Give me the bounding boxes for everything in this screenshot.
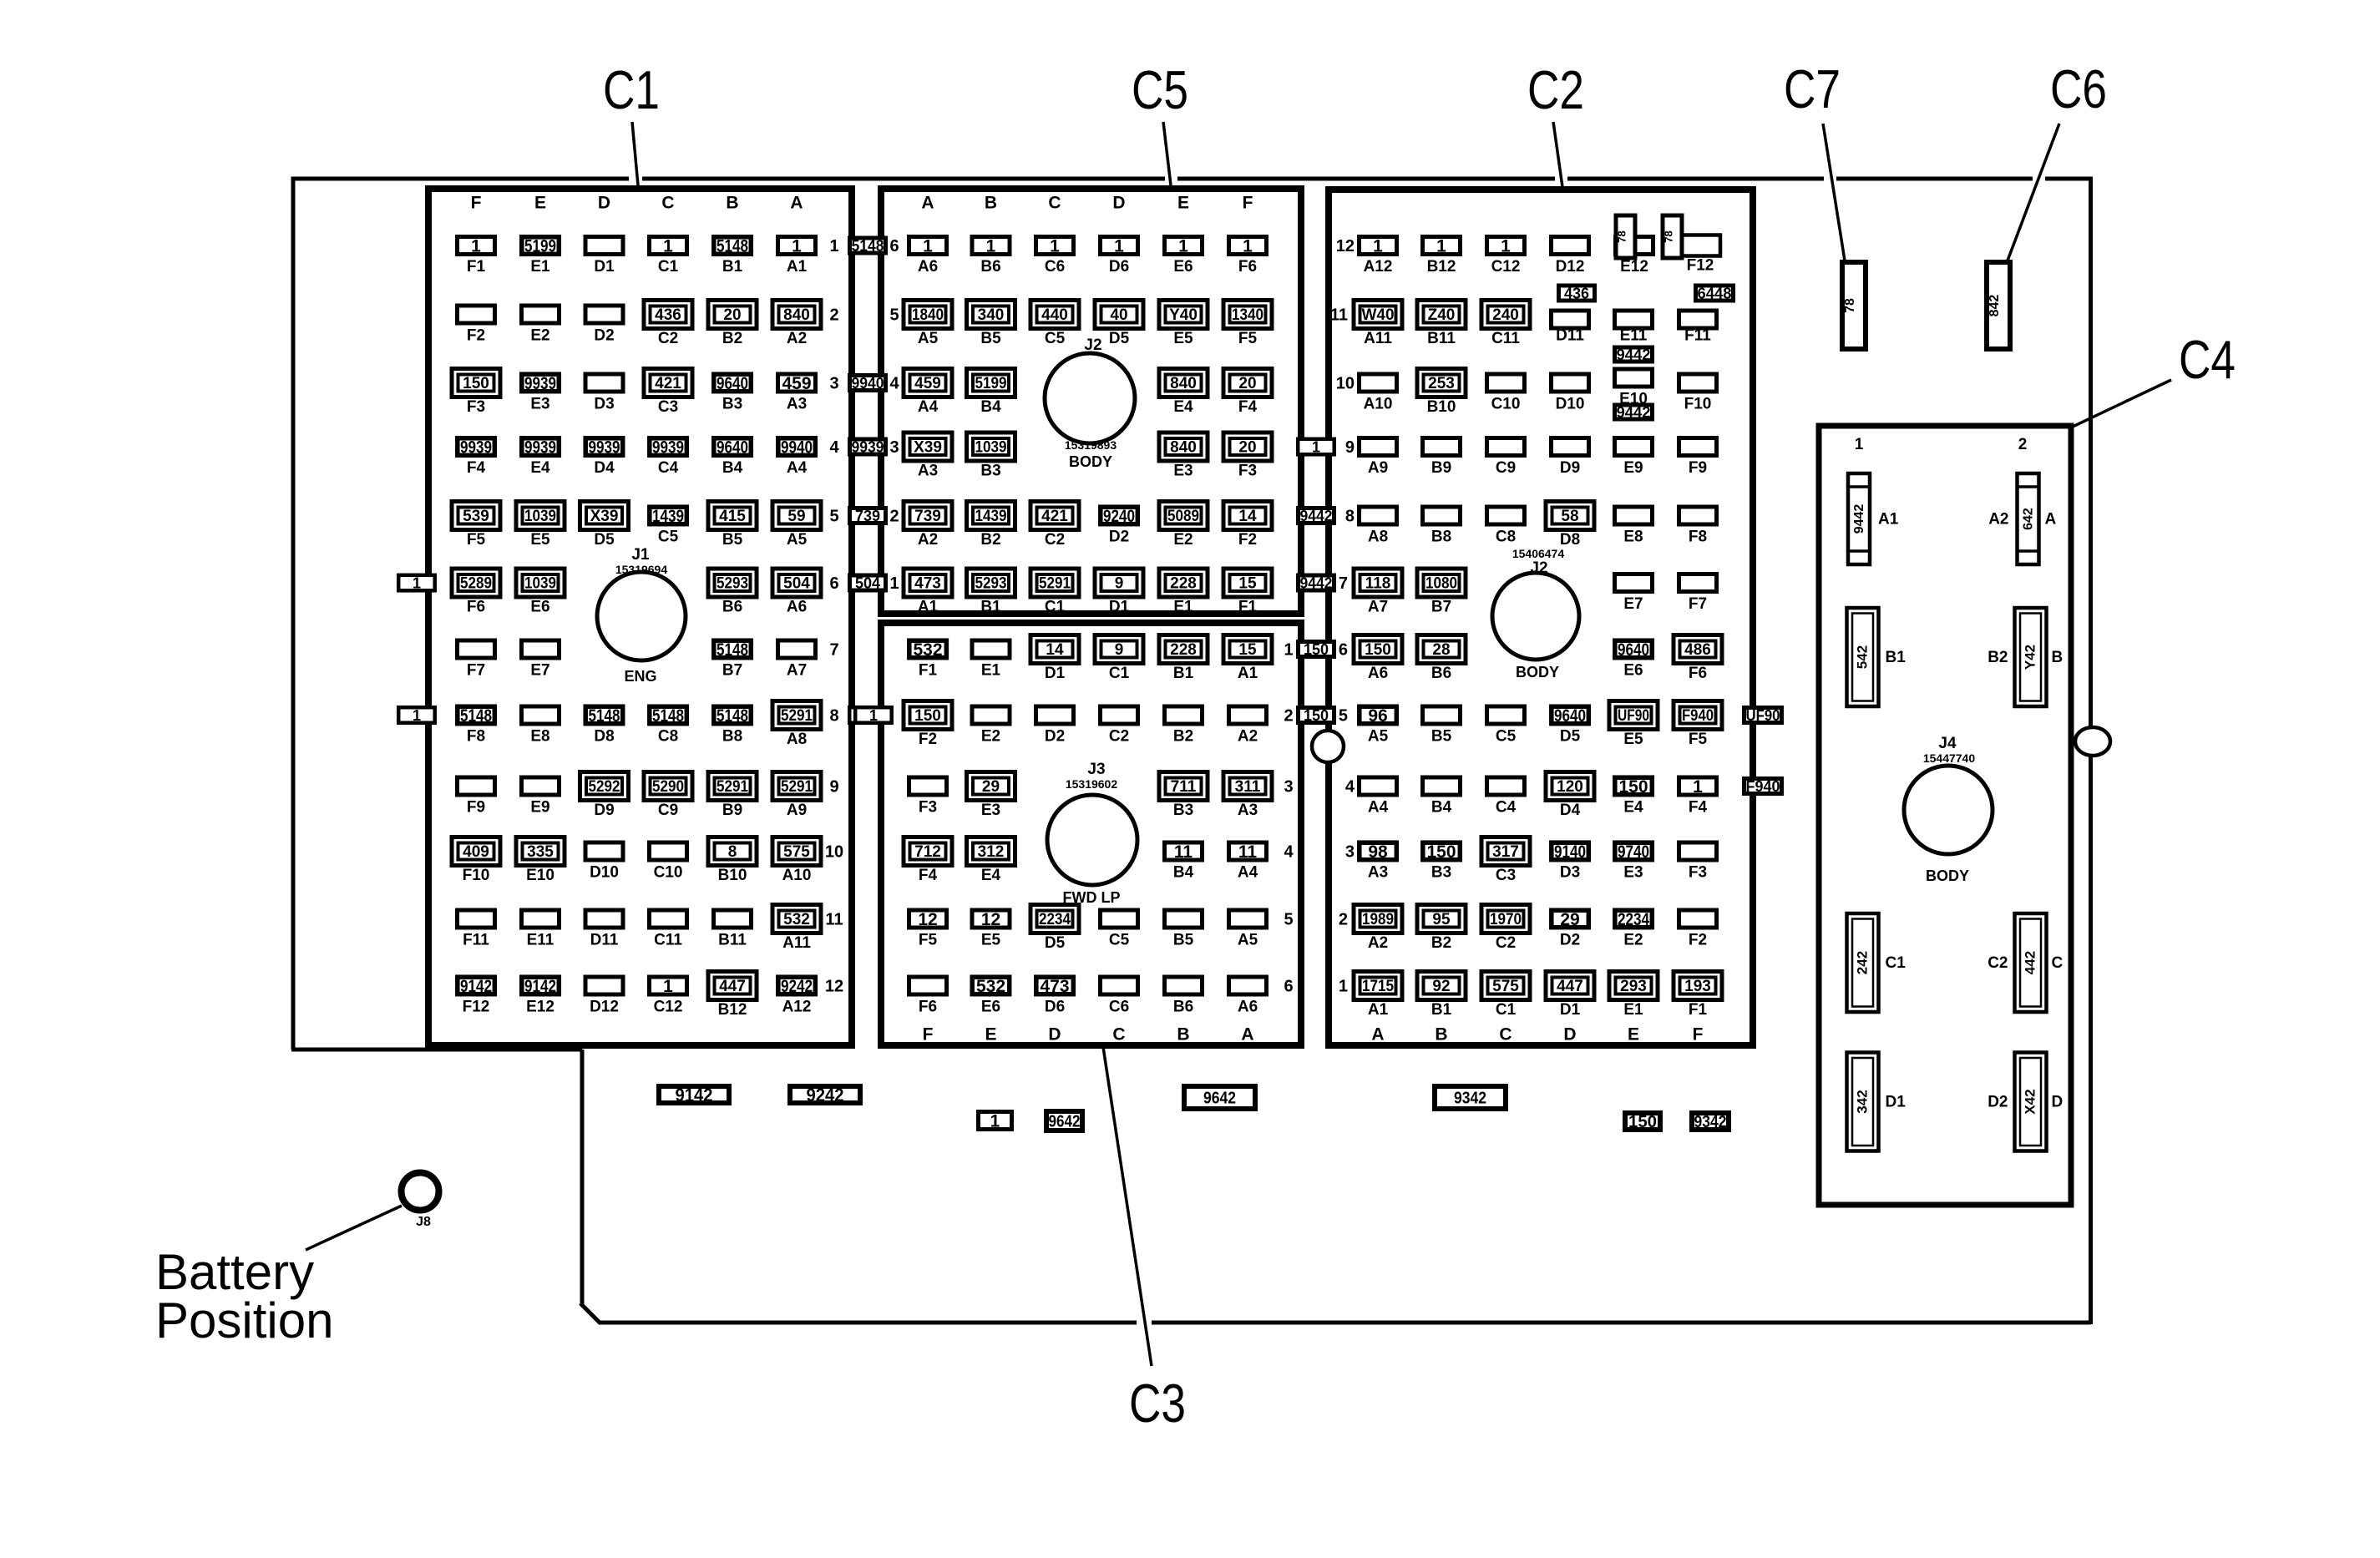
- svg-text:8: 8: [829, 707, 838, 726]
- svg-text:9940: 9940: [781, 438, 813, 458]
- svg-text:9442: 9442: [1617, 404, 1651, 421]
- svg-text:Battery: Battery: [155, 1244, 314, 1300]
- svg-text:E6: E6: [1623, 661, 1643, 679]
- svg-text:6: 6: [829, 574, 838, 593]
- svg-text:F6: F6: [919, 998, 937, 1015]
- svg-text:B6: B6: [722, 598, 742, 615]
- svg-text:9442: 9442: [1300, 575, 1333, 592]
- svg-text:12: 12: [918, 910, 937, 929]
- svg-text:C11: C11: [1491, 330, 1520, 347]
- svg-text:1: 1: [663, 977, 673, 996]
- svg-text:D11: D11: [590, 931, 619, 948]
- svg-text:C1: C1: [1496, 1001, 1517, 1019]
- svg-text:E11: E11: [1620, 326, 1648, 344]
- svg-text:B11: B11: [718, 931, 747, 948]
- svg-text:5: 5: [1284, 911, 1293, 929]
- svg-text:A2: A2: [787, 330, 807, 347]
- svg-text:B11: B11: [1427, 330, 1456, 347]
- svg-text:A4: A4: [1238, 863, 1258, 881]
- svg-text:D4: D4: [1560, 802, 1581, 819]
- svg-text:F6: F6: [467, 598, 485, 615]
- svg-text:504: 504: [855, 575, 880, 592]
- svg-text:95: 95: [1432, 911, 1451, 928]
- svg-text:F6: F6: [1689, 665, 1707, 682]
- svg-text:9: 9: [1115, 575, 1124, 593]
- svg-text:711: 711: [1171, 778, 1197, 796]
- svg-text:B1: B1: [1173, 665, 1194, 682]
- svg-text:504: 504: [783, 575, 810, 593]
- svg-text:C3: C3: [658, 398, 678, 416]
- svg-text:5148: 5148: [589, 706, 620, 726]
- svg-text:9: 9: [829, 778, 838, 797]
- svg-text:E4: E4: [1173, 398, 1193, 416]
- svg-text:9939: 9939: [852, 439, 884, 456]
- svg-text:B10: B10: [1427, 398, 1456, 416]
- svg-text:A5: A5: [1368, 727, 1389, 745]
- svg-text:E: E: [534, 194, 546, 213]
- svg-text:C1: C1: [1886, 954, 1907, 972]
- svg-text:C6: C6: [1109, 998, 1129, 1015]
- svg-text:D6: D6: [1109, 258, 1129, 276]
- svg-text:D5: D5: [1560, 727, 1581, 745]
- svg-text:2: 2: [829, 306, 838, 325]
- svg-text:1: 1: [889, 574, 899, 593]
- svg-text:E9: E9: [1623, 459, 1643, 477]
- svg-text:B1: B1: [980, 598, 1001, 615]
- svg-text:542: 542: [1855, 645, 1871, 669]
- svg-text:1439: 1439: [652, 507, 684, 526]
- svg-text:W40: W40: [1361, 306, 1394, 324]
- svg-text:E6: E6: [981, 998, 1000, 1015]
- svg-text:12: 12: [825, 978, 843, 996]
- svg-text:539: 539: [463, 508, 489, 525]
- svg-text:4: 4: [1345, 778, 1355, 797]
- svg-text:C10: C10: [1491, 395, 1521, 412]
- svg-text:6448: 6448: [1698, 286, 1732, 302]
- svg-text:2: 2: [2018, 436, 2028, 453]
- svg-text:575: 575: [783, 843, 810, 861]
- svg-text:1: 1: [1436, 237, 1446, 256]
- svg-text:J3: J3: [1087, 761, 1105, 778]
- svg-text:1039: 1039: [524, 575, 556, 593]
- svg-text:14: 14: [1238, 508, 1257, 525]
- svg-text:473: 473: [1040, 977, 1069, 996]
- svg-text:409: 409: [463, 843, 489, 861]
- svg-text:4: 4: [1284, 843, 1294, 862]
- svg-text:F2: F2: [1689, 931, 1707, 948]
- svg-text:C8: C8: [658, 727, 678, 745]
- svg-text:F3: F3: [919, 798, 937, 816]
- svg-text:20: 20: [723, 306, 741, 324]
- svg-text:739: 739: [855, 508, 880, 524]
- svg-text:150: 150: [1304, 707, 1329, 724]
- svg-text:B9: B9: [722, 802, 742, 819]
- svg-text:15406474: 15406474: [1512, 547, 1565, 560]
- svg-text:1439: 1439: [975, 508, 1007, 525]
- svg-text:1: 1: [1693, 777, 1703, 797]
- svg-text:F3: F3: [1689, 863, 1707, 881]
- svg-text:A: A: [921, 194, 934, 213]
- svg-text:B10: B10: [718, 867, 747, 884]
- svg-text:ENG: ENG: [624, 668, 656, 685]
- svg-text:5148: 5148: [717, 640, 748, 660]
- svg-text:B: B: [2052, 649, 2064, 666]
- svg-text:FWD LP: FWD LP: [1063, 889, 1121, 906]
- svg-text:459: 459: [782, 374, 811, 393]
- svg-text:C9: C9: [658, 802, 678, 819]
- svg-text:5199: 5199: [524, 237, 556, 256]
- svg-text:28: 28: [1432, 641, 1450, 659]
- svg-text:C4: C4: [1496, 798, 1517, 816]
- svg-text:739: 739: [914, 508, 941, 525]
- svg-text:415: 415: [719, 508, 746, 525]
- svg-text:J4: J4: [1938, 735, 1957, 752]
- svg-text:12: 12: [1336, 237, 1355, 255]
- svg-text:E3: E3: [1623, 863, 1643, 881]
- svg-text:1840: 1840: [912, 306, 944, 324]
- svg-text:A8: A8: [787, 731, 807, 748]
- svg-text:J1: J1: [631, 546, 650, 564]
- svg-text:D8: D8: [594, 727, 614, 745]
- svg-text:712: 712: [914, 843, 941, 861]
- svg-text:5148: 5148: [460, 706, 492, 726]
- svg-text:F1: F1: [1689, 1001, 1708, 1019]
- svg-text:BODY: BODY: [1926, 868, 1969, 884]
- svg-text:5293: 5293: [975, 575, 1007, 593]
- svg-text:228: 228: [1170, 641, 1197, 659]
- svg-text:A: A: [1241, 1025, 1253, 1045]
- svg-text:1039: 1039: [975, 439, 1007, 457]
- svg-text:1: 1: [923, 237, 933, 256]
- svg-text:E5: E5: [1173, 330, 1193, 347]
- svg-text:9939: 9939: [652, 438, 684, 458]
- svg-text:F4: F4: [919, 867, 938, 884]
- svg-text:B5: B5: [722, 531, 743, 549]
- svg-text:D: D: [598, 194, 610, 213]
- svg-text:96: 96: [1368, 706, 1387, 726]
- svg-text:5289: 5289: [460, 575, 492, 593]
- svg-text:A2: A2: [1368, 934, 1388, 952]
- svg-text:C2: C2: [1988, 954, 2008, 972]
- svg-text:D12: D12: [590, 998, 619, 1015]
- svg-text:5291: 5291: [1039, 575, 1071, 593]
- svg-text:9342: 9342: [1694, 1113, 1727, 1131]
- svg-text:342: 342: [1855, 1090, 1871, 1113]
- svg-text:A12: A12: [1364, 258, 1393, 276]
- svg-text:A3: A3: [787, 395, 807, 412]
- svg-text:A7: A7: [1368, 598, 1388, 615]
- svg-text:A3: A3: [1238, 802, 1258, 819]
- svg-text:436: 436: [655, 306, 681, 324]
- svg-text:D: D: [2052, 1094, 2064, 1111]
- svg-text:1: 1: [1312, 439, 1320, 456]
- svg-text:421: 421: [1041, 508, 1068, 525]
- svg-text:A: A: [2045, 511, 2057, 529]
- svg-text:9240: 9240: [1103, 507, 1135, 526]
- svg-text:C: C: [661, 194, 674, 213]
- svg-text:9140: 9140: [1554, 842, 1586, 862]
- svg-text:J8: J8: [416, 1215, 431, 1229]
- svg-text:C3: C3: [1129, 1373, 1186, 1434]
- svg-text:D3: D3: [594, 395, 614, 412]
- svg-text:C1: C1: [603, 59, 660, 120]
- svg-text:D10: D10: [590, 863, 619, 881]
- svg-text:Z40: Z40: [1428, 306, 1456, 324]
- svg-text:193: 193: [1684, 978, 1711, 995]
- svg-text:118: 118: [1365, 575, 1391, 593]
- svg-text:4: 4: [889, 375, 899, 393]
- svg-text:240: 240: [1492, 306, 1519, 324]
- svg-text:BODY: BODY: [1069, 453, 1112, 470]
- svg-text:B9: B9: [1431, 459, 1451, 477]
- svg-text:D5: D5: [1109, 330, 1130, 347]
- svg-text:1: 1: [471, 237, 481, 256]
- svg-text:15319893: 15319893: [1065, 438, 1117, 452]
- svg-text:E1: E1: [1623, 1001, 1643, 1019]
- svg-text:F7: F7: [467, 661, 485, 679]
- svg-text:E11: E11: [527, 931, 554, 948]
- svg-text:2: 2: [1284, 707, 1293, 726]
- svg-text:E: E: [1628, 1025, 1639, 1045]
- svg-text:A11: A11: [1364, 330, 1392, 347]
- svg-text:9939: 9939: [589, 438, 620, 458]
- svg-text:A3: A3: [918, 462, 938, 479]
- svg-text:9940: 9940: [852, 375, 884, 392]
- svg-text:F940: F940: [1746, 778, 1780, 795]
- svg-text:5293: 5293: [717, 575, 748, 593]
- svg-text:F5: F5: [919, 931, 938, 948]
- svg-text:58: 58: [1561, 508, 1578, 525]
- svg-text:B: B: [1435, 1025, 1447, 1045]
- svg-text:C5: C5: [1132, 59, 1188, 120]
- svg-text:D11: D11: [1556, 326, 1584, 344]
- svg-text:6: 6: [889, 237, 899, 255]
- svg-text:9142: 9142: [460, 977, 492, 996]
- svg-text:UF90: UF90: [1746, 707, 1780, 724]
- svg-text:532: 532: [913, 640, 942, 660]
- svg-text:9242: 9242: [807, 1085, 844, 1105]
- svg-text:E5: E5: [1623, 731, 1643, 748]
- svg-text:A8: A8: [1368, 528, 1388, 545]
- svg-text:98: 98: [1368, 842, 1388, 862]
- svg-text:A7: A7: [787, 661, 807, 679]
- svg-text:9640: 9640: [717, 438, 748, 458]
- svg-text:9939: 9939: [524, 374, 556, 393]
- svg-text:1: 1: [1373, 237, 1383, 256]
- svg-text:473: 473: [914, 575, 941, 593]
- svg-text:92: 92: [1432, 978, 1450, 995]
- svg-text:9640: 9640: [1554, 706, 1586, 726]
- svg-text:6: 6: [1284, 978, 1293, 996]
- svg-text:9939: 9939: [460, 438, 492, 458]
- svg-text:447: 447: [719, 978, 746, 995]
- svg-text:C4: C4: [2179, 329, 2236, 390]
- svg-text:D: D: [1563, 1025, 1576, 1045]
- svg-text:C: C: [2052, 954, 2064, 972]
- svg-text:F1: F1: [467, 258, 486, 276]
- svg-text:5: 5: [829, 508, 838, 526]
- svg-text:A10: A10: [782, 867, 812, 884]
- svg-text:E8: E8: [1623, 528, 1643, 545]
- svg-text:1970: 1970: [1490, 911, 1522, 928]
- svg-text:5089: 5089: [1167, 508, 1199, 525]
- svg-text:F: F: [1693, 1025, 1704, 1045]
- svg-text:C1: C1: [1109, 665, 1130, 682]
- svg-text:E5: E5: [530, 531, 550, 549]
- svg-text:X42: X42: [2023, 1089, 2038, 1114]
- svg-text:4: 4: [829, 438, 839, 457]
- svg-text:E12: E12: [526, 998, 554, 1015]
- svg-text:D5: D5: [594, 531, 615, 549]
- svg-text:9740: 9740: [1618, 842, 1649, 862]
- svg-text:3: 3: [1345, 843, 1355, 862]
- svg-text:A1: A1: [918, 598, 939, 615]
- svg-text:X39: X39: [590, 508, 619, 525]
- svg-text:B6: B6: [980, 258, 1000, 276]
- svg-text:E7: E7: [1623, 595, 1643, 613]
- svg-text:253: 253: [1428, 375, 1455, 392]
- svg-text:B5: B5: [980, 330, 1001, 347]
- svg-text:40: 40: [1110, 306, 1127, 324]
- svg-text:11: 11: [1238, 842, 1258, 862]
- svg-text:11: 11: [1174, 842, 1193, 862]
- svg-text:F5: F5: [467, 531, 486, 549]
- svg-text:1715: 1715: [1362, 978, 1394, 995]
- svg-text:A6: A6: [1238, 998, 1258, 1015]
- svg-text:B3: B3: [1431, 863, 1451, 881]
- svg-text:15: 15: [1238, 575, 1257, 593]
- svg-text:BODY: BODY: [1516, 664, 1559, 680]
- svg-text:F3: F3: [1238, 462, 1257, 479]
- svg-text:B8: B8: [722, 727, 742, 745]
- svg-text:9142: 9142: [676, 1085, 713, 1105]
- svg-text:A: A: [790, 194, 803, 213]
- svg-text:C5: C5: [658, 528, 679, 545]
- svg-text:B2: B2: [1431, 934, 1451, 952]
- svg-text:C2: C2: [1527, 59, 1584, 120]
- svg-text:C12: C12: [654, 998, 683, 1015]
- svg-text:E: E: [985, 1025, 996, 1045]
- svg-text:150: 150: [1618, 777, 1648, 797]
- svg-text:9442: 9442: [1852, 504, 1866, 534]
- svg-text:C: C: [1112, 1025, 1125, 1045]
- svg-text:B8: B8: [1431, 528, 1451, 545]
- svg-text:F7: F7: [1689, 595, 1707, 613]
- svg-text:F9: F9: [1689, 459, 1707, 477]
- svg-text:F11: F11: [463, 931, 489, 948]
- svg-text:1: 1: [1855, 436, 1864, 453]
- svg-text:C10: C10: [654, 863, 683, 881]
- svg-text:2234: 2234: [1039, 911, 1071, 928]
- svg-text:C5: C5: [1045, 330, 1066, 347]
- svg-text:442: 442: [2023, 951, 2038, 974]
- svg-text:B4: B4: [980, 398, 1001, 416]
- svg-text:5: 5: [1339, 707, 1348, 726]
- svg-text:1: 1: [413, 707, 421, 724]
- svg-text:B2: B2: [1173, 727, 1193, 745]
- svg-text:D10: D10: [1556, 395, 1585, 412]
- svg-text:120: 120: [1557, 778, 1583, 796]
- svg-text:D9: D9: [1560, 459, 1580, 477]
- svg-text:C7: C7: [1784, 58, 1841, 119]
- svg-text:E5: E5: [981, 931, 1001, 948]
- svg-text:A9: A9: [1368, 459, 1388, 477]
- svg-text:840: 840: [1170, 375, 1197, 392]
- svg-text:10: 10: [825, 843, 843, 862]
- svg-text:D3: D3: [1560, 863, 1580, 881]
- svg-text:F12: F12: [463, 998, 490, 1015]
- svg-text:9342: 9342: [1454, 1090, 1486, 1108]
- svg-text:D8: D8: [1560, 531, 1580, 549]
- svg-text:9642: 9642: [1049, 1113, 1081, 1131]
- svg-text:C5: C5: [1109, 931, 1130, 948]
- svg-text:B5: B5: [1173, 931, 1194, 948]
- svg-text:532: 532: [976, 977, 1005, 996]
- svg-text:12: 12: [981, 910, 1000, 929]
- svg-text:E1: E1: [981, 661, 1001, 679]
- svg-text:8: 8: [728, 843, 737, 861]
- svg-text:5291: 5291: [717, 778, 748, 796]
- svg-text:9640: 9640: [1618, 640, 1649, 660]
- svg-text:E2: E2: [981, 727, 1000, 745]
- svg-text:F: F: [1243, 194, 1253, 213]
- svg-text:486: 486: [1684, 641, 1711, 659]
- svg-text:1080: 1080: [1425, 575, 1457, 593]
- svg-text:E8: E8: [530, 727, 549, 745]
- svg-text:C5: C5: [1496, 727, 1517, 745]
- svg-text:78: 78: [1843, 298, 1857, 313]
- svg-text:29: 29: [982, 778, 1000, 796]
- svg-text:B6: B6: [1173, 998, 1193, 1015]
- svg-text:7: 7: [1339, 574, 1348, 593]
- svg-text:150: 150: [1628, 1113, 1657, 1131]
- svg-text:436: 436: [1564, 286, 1589, 302]
- svg-text:8: 8: [1345, 508, 1355, 526]
- svg-text:5: 5: [889, 306, 899, 325]
- svg-text:A4: A4: [1368, 798, 1389, 816]
- svg-text:D: D: [1048, 1025, 1061, 1045]
- svg-text:C2: C2: [1109, 727, 1129, 745]
- svg-text:F6: F6: [1238, 258, 1257, 276]
- svg-text:1: 1: [990, 1112, 1000, 1131]
- svg-text:11: 11: [1330, 306, 1348, 325]
- svg-text:1: 1: [829, 237, 838, 255]
- svg-text:14: 14: [1046, 641, 1064, 659]
- svg-text:11: 11: [825, 911, 843, 929]
- svg-text:A2: A2: [918, 531, 938, 549]
- svg-text:1: 1: [986, 237, 996, 256]
- svg-text:1: 1: [1050, 237, 1060, 256]
- svg-text:150: 150: [463, 375, 489, 392]
- svg-text:B3: B3: [1173, 802, 1193, 819]
- svg-text:D6: D6: [1045, 998, 1065, 1015]
- svg-text:C11: C11: [654, 931, 682, 948]
- svg-text:459: 459: [914, 375, 941, 392]
- svg-text:5148: 5148: [717, 706, 748, 726]
- svg-text:D1: D1: [1886, 1094, 1907, 1111]
- svg-text:A11: A11: [782, 934, 811, 952]
- svg-text:6: 6: [1339, 641, 1348, 660]
- svg-text:1989: 1989: [1362, 911, 1394, 928]
- svg-text:F5: F5: [1238, 330, 1258, 347]
- svg-text:A6: A6: [918, 258, 938, 276]
- svg-text:D9: D9: [594, 802, 614, 819]
- svg-text:F9: F9: [467, 798, 485, 816]
- svg-text:B5: B5: [1431, 727, 1452, 745]
- svg-text:D2: D2: [1560, 931, 1580, 948]
- svg-text:D5: D5: [1045, 934, 1066, 952]
- svg-text:C8: C8: [1496, 528, 1516, 545]
